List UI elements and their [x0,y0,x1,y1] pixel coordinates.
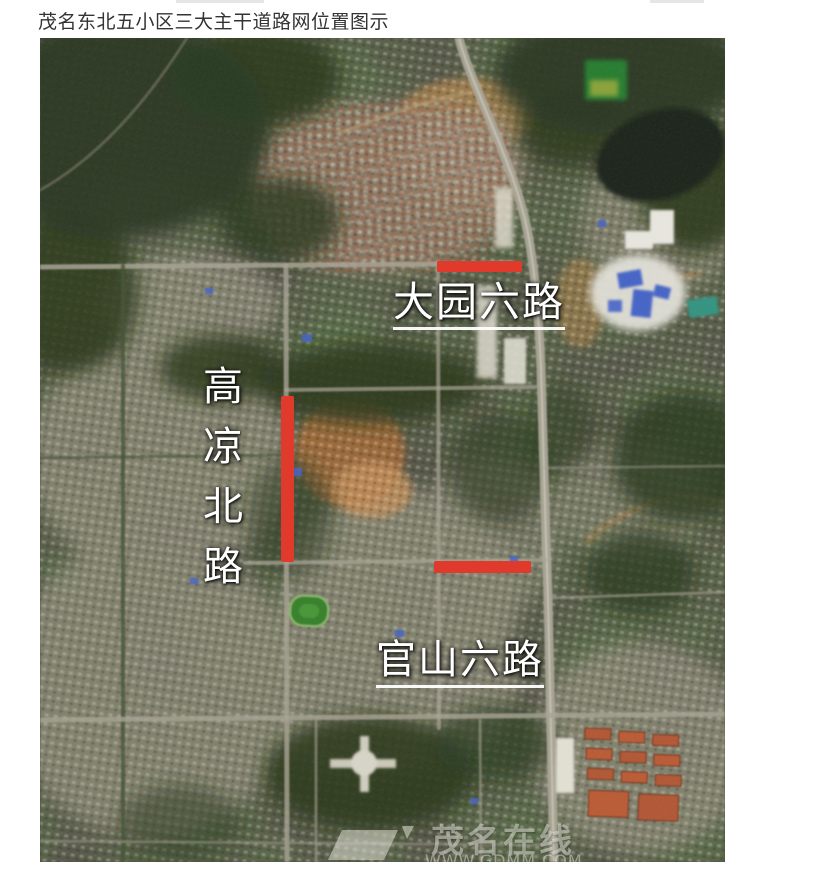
page: 茂名东北五小区三大主干道路网位置图示 [0,0,834,873]
satellite-basemap [40,38,725,862]
watermark: 茂名在线 WWW.GDMM.COM [328,824,583,862]
site-logo-icon [328,826,423,862]
watermark-url: WWW.GDMM.COM [425,853,583,862]
road-label-gaoliang: 高凉北路 [198,365,240,605]
guanshan-road-highlight-bar [434,561,531,573]
cropped-element-above [176,0,264,3]
gaoliang-road-highlight-bar [281,396,294,562]
road-label-dayuan: 大园六路 [393,281,565,330]
map-image[interactable]: 大园六路 高凉北路 官山六路 茂名在线 WWW.GDMM.COM [40,38,725,862]
cropped-element-above [650,0,704,3]
page-title: 茂名东北五小区三大主干道路网位置图示 [38,7,389,34]
dayuan-road-highlight-bar [437,261,522,272]
road-label-guanshan: 官山六路 [376,639,544,688]
